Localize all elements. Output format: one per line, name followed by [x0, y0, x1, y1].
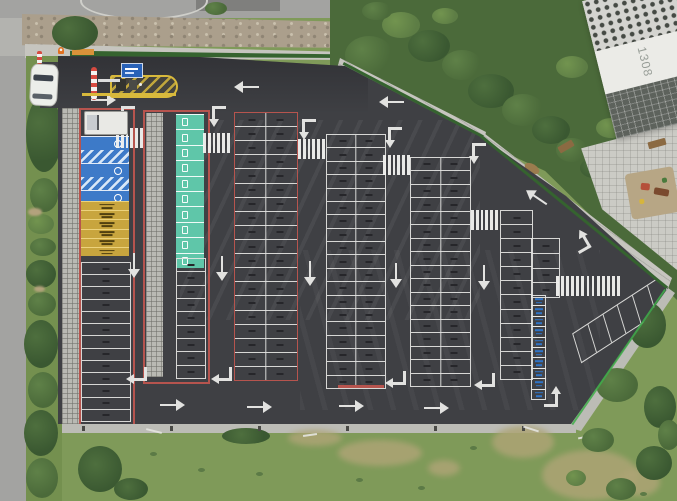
stall-teal — [176, 114, 204, 129]
arrow-head — [440, 402, 449, 414]
section-col2-standard — [176, 258, 206, 379]
stall-teal — [176, 237, 204, 252]
tree — [582, 428, 614, 452]
parking-sign — [121, 63, 143, 78]
arrow-head — [209, 119, 219, 127]
stall-row — [177, 259, 205, 271]
stall-row — [501, 351, 532, 365]
arrow-head — [551, 386, 561, 394]
arrow-shaft — [242, 86, 259, 89]
arrow-shaft — [388, 127, 391, 141]
stall-yellow — [81, 219, 129, 228]
stall-row — [501, 211, 532, 224]
arrow-head — [128, 269, 140, 278]
stall-row — [82, 286, 130, 298]
traffic-arrow-down — [216, 256, 228, 282]
arrow-head — [234, 81, 243, 93]
stall-row — [177, 311, 205, 324]
tree — [24, 320, 58, 368]
section-col5 — [410, 157, 471, 387]
stall-yellow — [81, 238, 129, 247]
traffic-arrow-down — [390, 263, 402, 289]
stall-row — [177, 351, 205, 364]
section-col1-standard — [81, 262, 131, 422]
bush — [222, 428, 270, 444]
stall-teal — [176, 160, 204, 175]
traffic-arrow-bent-es — [471, 143, 487, 165]
arrow-shaft — [392, 382, 406, 385]
stall-teal — [176, 129, 204, 144]
arrow-head — [211, 374, 219, 384]
arrow-shaft — [483, 265, 486, 282]
arrow-head — [469, 156, 479, 164]
traffic-arrow-bent-es — [301, 119, 317, 141]
arrow-head — [355, 400, 364, 412]
section-col2-ev — [176, 114, 204, 258]
arrow-shaft — [302, 119, 305, 133]
grass-tuft — [198, 468, 205, 472]
stall-row — [177, 285, 205, 298]
traffic-arrow-right — [339, 400, 365, 412]
tree — [362, 2, 392, 20]
traffic-arrow-bent-es — [387, 127, 403, 149]
stall-teal — [176, 191, 204, 206]
curb-post — [170, 426, 173, 431]
tree — [26, 260, 56, 288]
stall-row — [82, 335, 130, 347]
arrow-head — [304, 277, 316, 286]
stall-row — [501, 294, 532, 308]
traffic-arrow-left — [233, 81, 259, 93]
play-equipment — [641, 183, 651, 191]
crosswalk — [471, 210, 498, 230]
left-edge-paver-strip — [62, 108, 80, 424]
arrow-head — [126, 374, 134, 384]
truck-cab — [87, 115, 99, 130]
section-col2-grasscrete — [146, 113, 163, 377]
stall-row — [532, 253, 559, 268]
tan-patch — [28, 208, 42, 216]
bush — [114, 478, 148, 500]
play-equipment — [639, 199, 645, 205]
grass-tuft — [418, 486, 425, 490]
aerial-parking-lot-photo: 1308 — [0, 0, 677, 501]
traffic-arrow-down — [478, 265, 490, 291]
arrow-shaft — [309, 261, 312, 278]
traffic-arrow-bent-nw — [125, 366, 147, 382]
arrow-shaft — [247, 406, 264, 409]
arrow-head — [385, 378, 393, 388]
tree — [556, 56, 588, 78]
traffic-cone — [58, 47, 64, 54]
arrow-shaft — [424, 407, 441, 410]
arrow-shaft — [133, 253, 136, 270]
crosswalk — [556, 276, 620, 296]
curb-post — [346, 426, 349, 431]
tree — [442, 50, 482, 80]
tan-patch — [34, 286, 45, 292]
stall-midline — [265, 113, 266, 380]
stall-row — [501, 323, 532, 337]
stall-row — [177, 325, 205, 338]
arrow-shaft — [532, 194, 548, 206]
stall-row — [177, 338, 205, 351]
parked-truck — [84, 111, 128, 135]
stall-row — [501, 280, 532, 294]
stall-teal — [176, 176, 204, 191]
stall-row — [501, 252, 532, 266]
arrow-head — [176, 399, 185, 411]
tree — [205, 2, 227, 15]
tree — [30, 178, 58, 212]
arrow-shaft — [387, 101, 404, 104]
stall-row — [82, 384, 130, 396]
tree — [636, 446, 672, 480]
arrow-shaft — [555, 393, 558, 407]
stall-row — [82, 397, 130, 409]
crosswalk — [298, 139, 325, 159]
dry-grass-patch — [428, 460, 460, 476]
stall-row — [82, 299, 130, 311]
dry-grass-patch — [338, 440, 422, 466]
arrow-head — [379, 96, 388, 108]
grass-tuft — [150, 452, 157, 456]
arrow-shaft — [339, 405, 356, 408]
stall-row — [501, 266, 532, 280]
curb-post — [258, 426, 261, 431]
stall-midline — [355, 135, 356, 388]
traffic-arrow-bent-nw — [384, 370, 406, 386]
stall-row — [177, 298, 205, 311]
stall-row — [532, 268, 559, 283]
traffic-arrow-bent-es — [211, 106, 227, 128]
tree — [28, 214, 54, 234]
traffic-arrow-down — [304, 261, 316, 287]
tree — [30, 238, 56, 256]
stall-yellow — [81, 247, 129, 256]
stall-row — [501, 224, 532, 238]
gate-light — [139, 83, 142, 86]
traffic-arrow-right — [424, 402, 450, 414]
stall-yellow — [81, 229, 129, 238]
arrow-shaft — [481, 384, 495, 387]
stall-row — [177, 271, 205, 284]
white-car — [29, 63, 59, 106]
curb-post — [82, 426, 85, 431]
stall-row — [82, 360, 130, 372]
section-col4 — [326, 134, 386, 389]
play-equipment — [662, 177, 668, 183]
stall-row — [82, 348, 130, 360]
tree — [28, 372, 58, 408]
arrow-head — [390, 279, 402, 288]
curb-post — [434, 426, 437, 431]
arrow-head — [474, 380, 482, 390]
stall-bluehatch — [81, 177, 129, 190]
yellow-guide-line — [82, 93, 176, 96]
stall-row — [501, 238, 532, 252]
arrow-shaft — [160, 404, 177, 407]
arrow-shaft — [218, 378, 232, 381]
traffic-arrow-bent-nw — [210, 366, 232, 382]
traffic-arrow-down — [128, 253, 140, 279]
tree — [566, 470, 586, 486]
section-col6-moto — [531, 296, 546, 390]
stall-teal — [176, 145, 204, 160]
grass-tuft — [256, 472, 263, 476]
play-equipment — [653, 187, 669, 196]
section-col4-redline — [338, 385, 384, 388]
arrow-shaft — [212, 106, 215, 120]
stall-row — [532, 239, 559, 253]
stall-bluehatch — [81, 150, 129, 163]
traffic-arrow-left — [378, 96, 404, 108]
arrow-head — [263, 401, 272, 413]
stall-row — [501, 337, 532, 351]
arrow-head — [478, 281, 490, 290]
stall-row — [82, 372, 130, 384]
arrow-head — [299, 132, 309, 140]
stop-line — [98, 79, 120, 82]
tree — [24, 410, 58, 456]
car-windshield — [33, 74, 53, 81]
tree — [606, 478, 636, 500]
playground — [624, 166, 677, 220]
stall-blue — [81, 163, 129, 177]
building-number-label: 1308 — [634, 45, 655, 78]
stall-row — [82, 274, 130, 286]
traffic-arrow-bent-wn — [543, 385, 559, 407]
stall-row — [501, 309, 532, 323]
tree — [432, 8, 458, 24]
arrow-shaft — [221, 256, 224, 273]
arrow-head — [385, 140, 395, 148]
section-col6-left — [500, 210, 533, 380]
tree — [658, 420, 677, 450]
traffic-arrow-right — [247, 401, 273, 413]
grass-tuft — [356, 478, 363, 482]
gate-barrier-unit — [129, 80, 137, 90]
stall-teal — [176, 206, 204, 221]
stall-row — [501, 365, 532, 379]
crosswalk — [383, 155, 410, 175]
stall-midline — [440, 158, 441, 386]
grass-tuft — [640, 492, 647, 496]
crosswalk — [203, 133, 230, 153]
tree — [52, 16, 98, 50]
striped-bollard — [37, 51, 42, 64]
section-col1-compact — [81, 201, 129, 250]
arrow-head — [216, 272, 228, 281]
traffic-arrow-bent-nw — [473, 372, 495, 388]
traffic-arrow-right — [160, 399, 186, 411]
arrow-shaft — [395, 263, 398, 280]
tree — [28, 292, 56, 316]
left-road — [0, 0, 26, 501]
stall-row — [82, 409, 130, 421]
arrow-shaft — [133, 378, 147, 381]
stall-yellow — [81, 201, 129, 210]
section-col3 — [234, 112, 298, 381]
arrow-shaft — [472, 143, 475, 157]
stall-yellow — [81, 210, 129, 219]
stall-row — [82, 323, 130, 335]
tree — [26, 458, 58, 498]
stall-row — [177, 365, 205, 378]
car-rear-window — [32, 93, 52, 99]
grass-tuft — [470, 446, 477, 450]
stall-row — [82, 263, 130, 274]
stall-row — [82, 311, 130, 323]
stall-teal — [176, 222, 204, 237]
